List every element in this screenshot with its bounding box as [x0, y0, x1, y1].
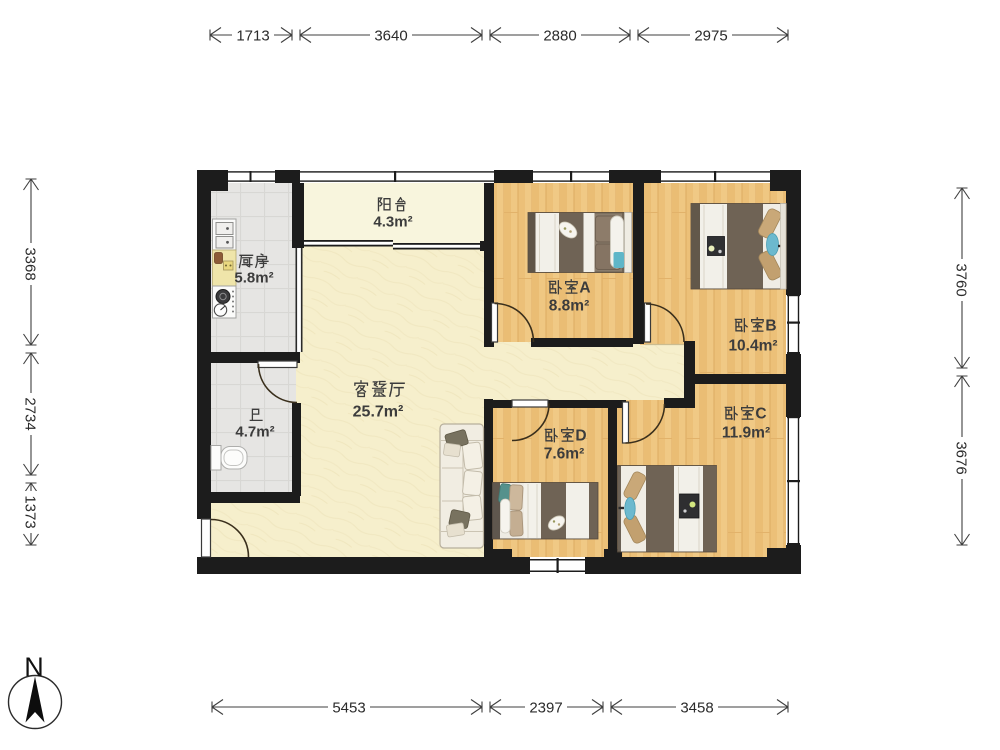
svg-text:4.3m²: 4.3m² [373, 214, 412, 231]
svg-text:1713: 1713 [236, 27, 269, 44]
svg-text:2975: 2975 [694, 27, 727, 44]
svg-text:11.9m²: 11.9m² [722, 425, 770, 442]
svg-text:10.4m²: 10.4m² [728, 338, 777, 355]
svg-text:3760: 3760 [953, 263, 970, 296]
svg-text:4.7m²: 4.7m² [235, 424, 274, 441]
svg-text:3368: 3368 [22, 247, 39, 280]
svg-text:2880: 2880 [543, 27, 576, 44]
svg-text:7.6m²: 7.6m² [544, 445, 585, 462]
svg-text:A: A [579, 280, 590, 297]
svg-text:25.7m²: 25.7m² [353, 404, 404, 421]
svg-text:3458: 3458 [680, 699, 713, 716]
svg-text:B: B [765, 318, 776, 335]
svg-text:2734: 2734 [22, 397, 39, 430]
svg-text:N: N [24, 652, 44, 682]
svg-text:C: C [755, 406, 766, 423]
svg-text:8.8m²: 8.8m² [549, 297, 590, 314]
svg-text:3640: 3640 [374, 27, 407, 44]
svg-text:2397: 2397 [529, 699, 562, 716]
svg-text:3676: 3676 [953, 441, 970, 474]
svg-text:1373: 1373 [22, 495, 39, 528]
svg-text:D: D [575, 428, 586, 445]
svg-text:5453: 5453 [332, 699, 365, 716]
svg-text:5.8m²: 5.8m² [234, 269, 273, 286]
